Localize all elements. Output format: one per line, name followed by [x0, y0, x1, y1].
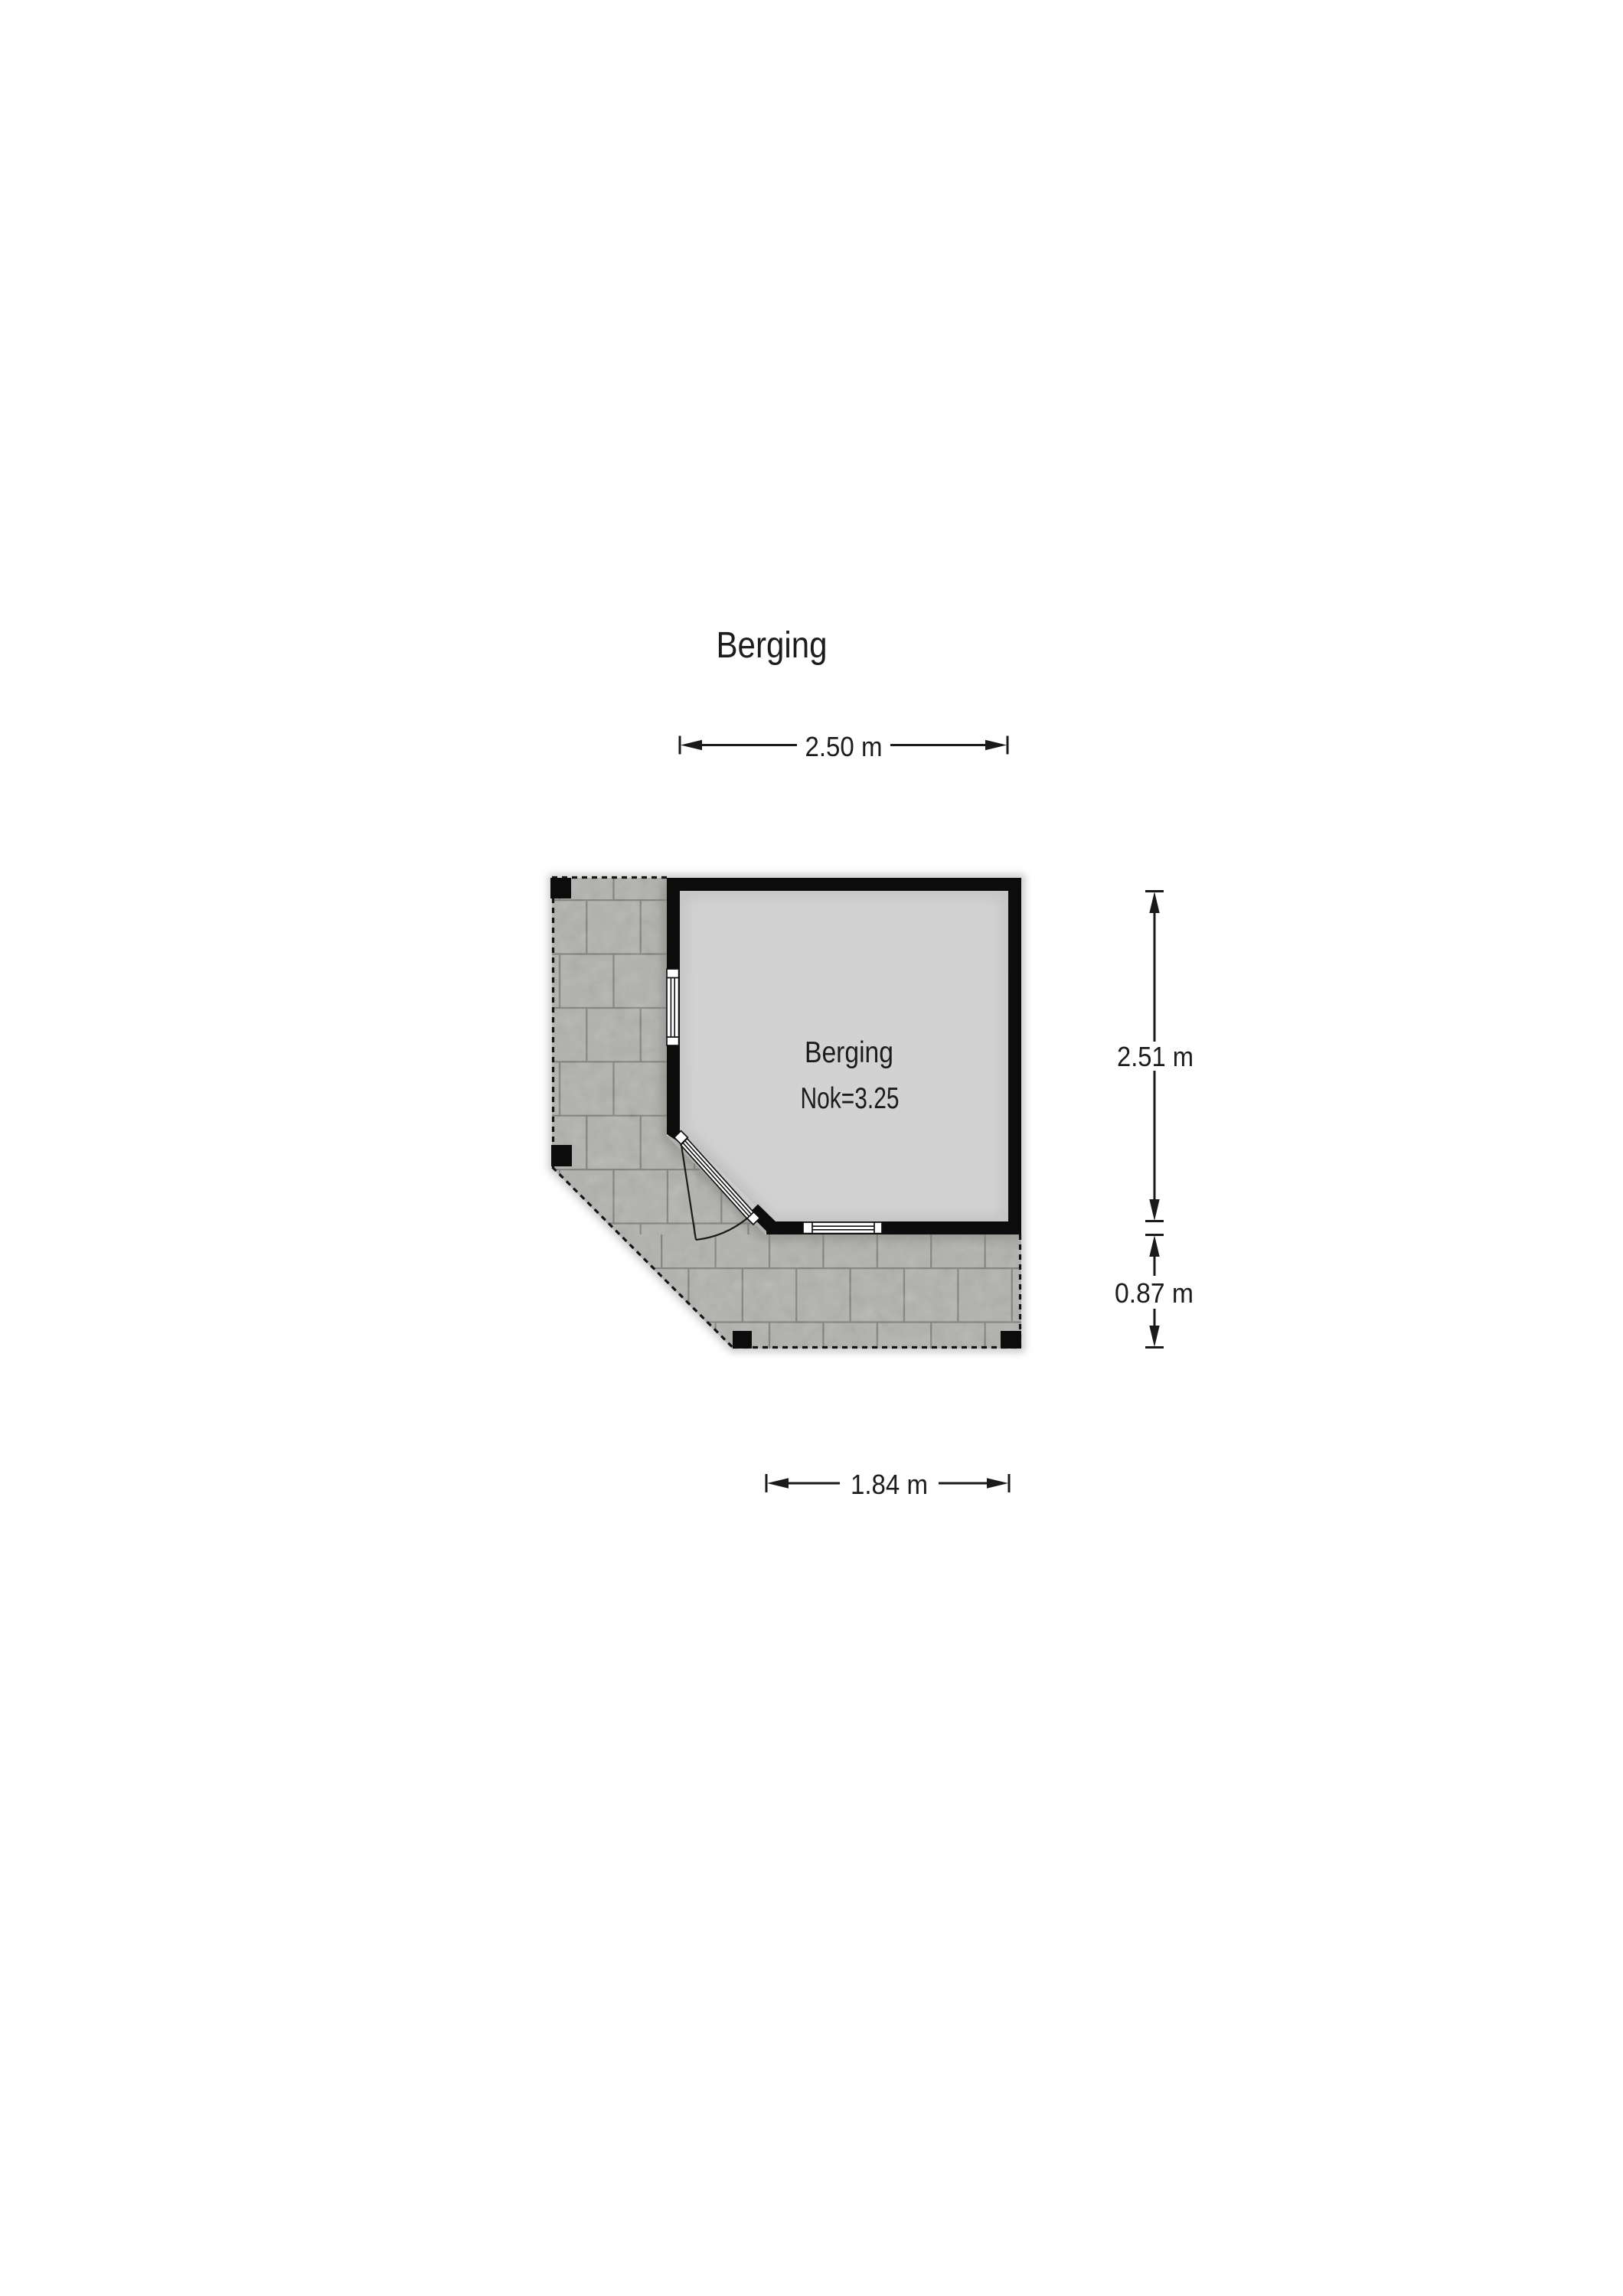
svg-text:Berging: Berging [717, 625, 828, 666]
svg-text:1.84 m: 1.84 m [851, 1469, 928, 1500]
svg-text:2.51 m: 2.51 m [1117, 1041, 1194, 1072]
svg-text:2.50 m: 2.50 m [805, 731, 883, 762]
svg-text:0.87 m: 0.87 m [1115, 1277, 1194, 1309]
svg-text:Berging: Berging [805, 1036, 893, 1069]
svg-text:Nok=3.25: Nok=3.25 [801, 1082, 900, 1115]
